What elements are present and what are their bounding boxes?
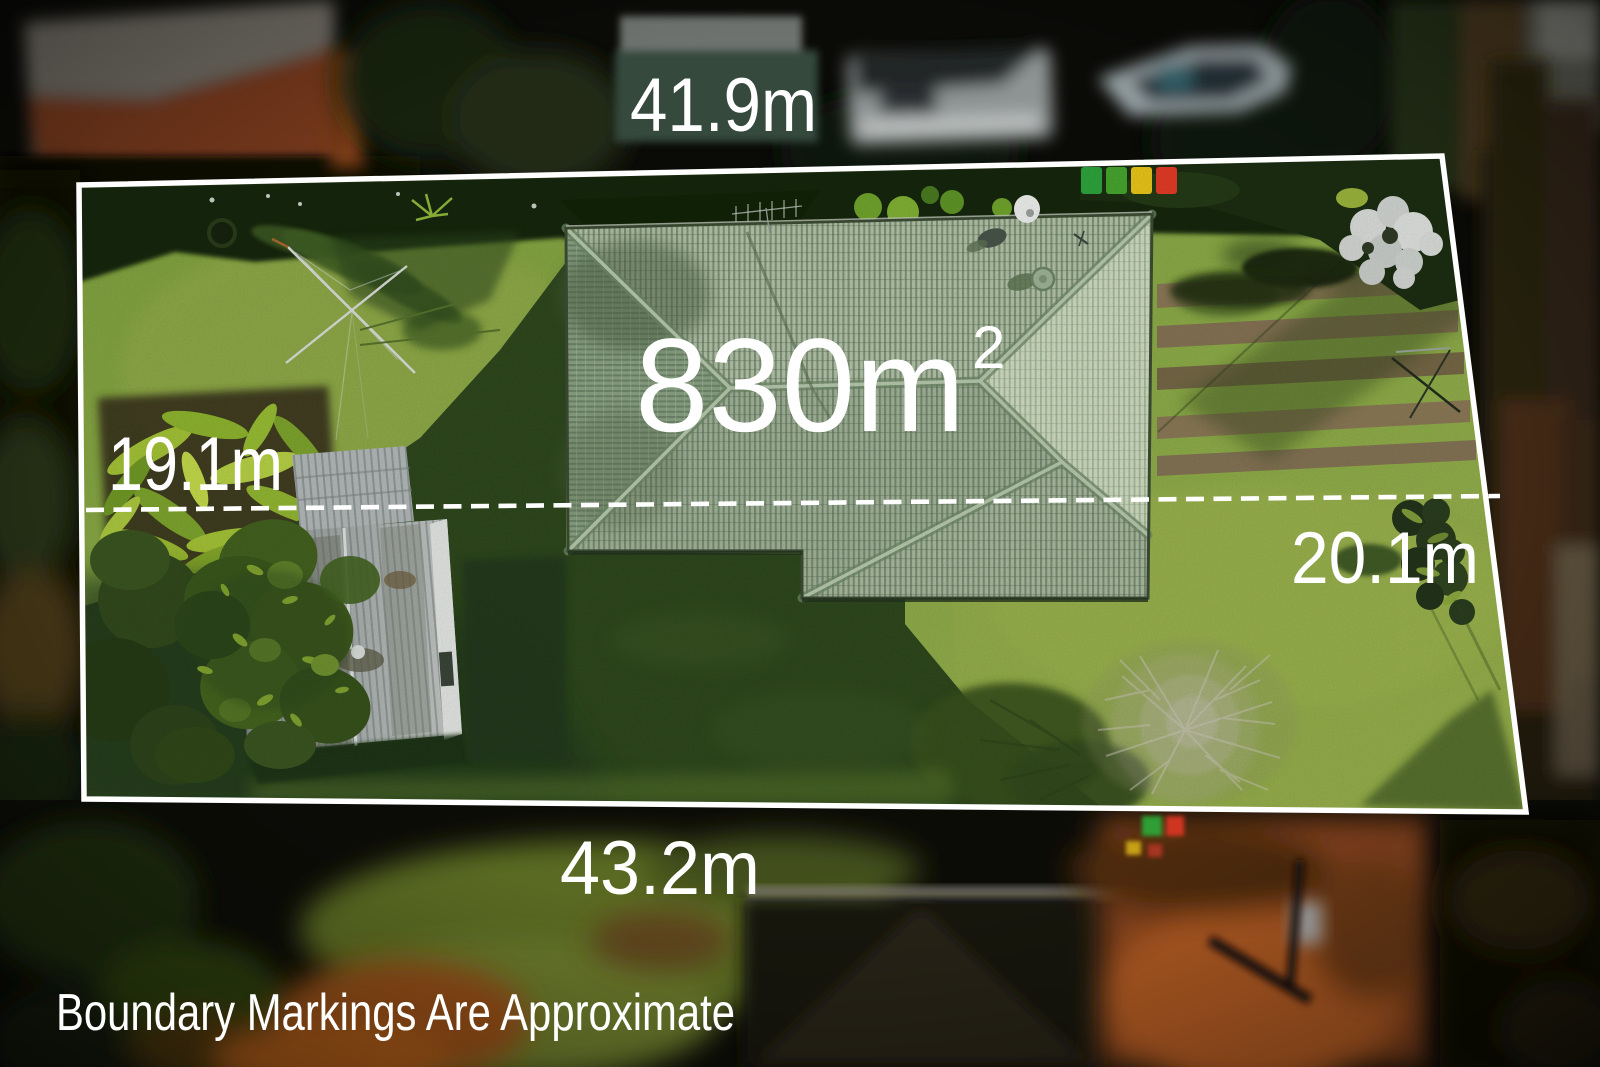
svg-text:Boundary Markings Are Approxim: Boundary Markings Are Approximate xyxy=(56,984,735,1042)
svg-text:41.9m: 41.9m xyxy=(630,63,817,148)
svg-text:19.1m: 19.1m xyxy=(108,422,283,507)
svg-text:2: 2 xyxy=(972,314,1005,381)
svg-text:830m: 830m xyxy=(635,312,965,460)
svg-text:20.1m: 20.1m xyxy=(1291,518,1479,599)
svg-text:43.2m: 43.2m xyxy=(560,826,760,911)
